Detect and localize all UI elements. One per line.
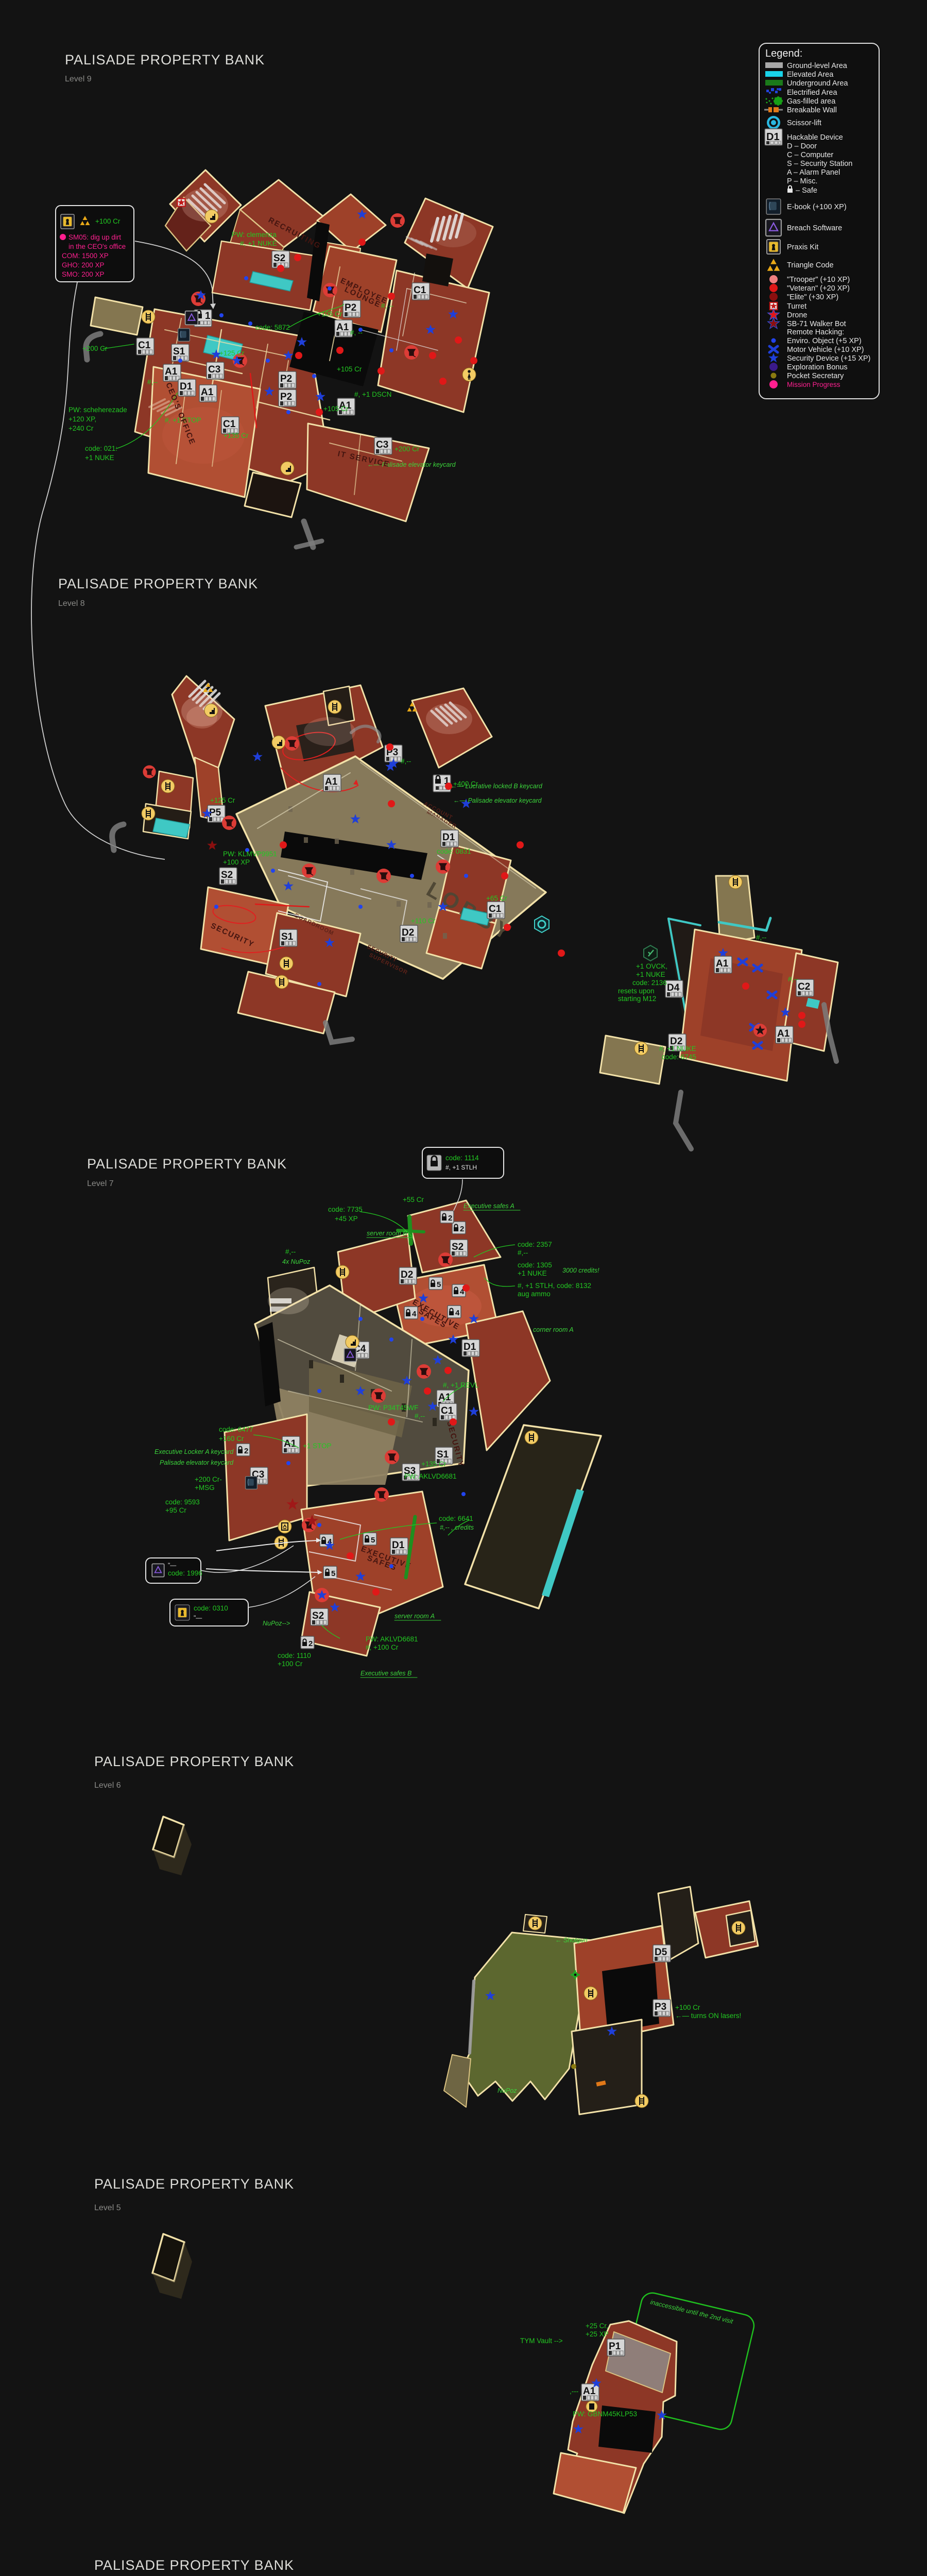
svg-text:PW: scheherezade: PW: scheherezade <box>68 406 127 414</box>
svg-text:A1: A1 <box>716 958 729 969</box>
svg-text:D1: D1 <box>442 832 455 843</box>
svg-text:PW: KLMVP9951: PW: KLMVP9951 <box>223 850 277 858</box>
svg-text:GHO: 200 XP: GHO: 200 XP <box>62 261 105 269</box>
svg-text:code: 9593: code: 9593 <box>165 1498 200 1506</box>
svg-text:PW: GBNM45KLP53: PW: GBNM45KLP53 <box>573 2410 637 2418</box>
svg-text:"Elite" (+30 XP): "Elite" (+30 XP) <box>787 293 838 301</box>
svg-text:←— Palisade elevator keycard: ←— Palisade elevator keycard <box>453 797 542 804</box>
svg-text:SM05: dig up dirt: SM05: dig up dirt <box>68 233 121 241</box>
svg-text:S – Security Station: S – Security Station <box>787 160 852 168</box>
svg-text:2: 2 <box>460 1225 464 1233</box>
svg-text:S2: S2 <box>312 1611 324 1621</box>
svg-text:#, +1 NUKE: #, +1 NUKE <box>240 240 277 247</box>
svg-text:corner room A: corner room A <box>533 1326 574 1333</box>
svg-text:D4: D4 <box>667 982 680 993</box>
svg-text:Scissor-lift: Scissor-lift <box>787 119 821 127</box>
svg-text:PALISADE PROPERTY BANK: PALISADE PROPERTY BANK <box>65 52 265 67</box>
svg-text:S2: S2 <box>452 1242 463 1252</box>
svg-text:resets upon: resets upon <box>618 987 655 995</box>
svg-text:PALISADE PROPERTY BANK: PALISADE PROPERTY BANK <box>94 1754 294 1769</box>
svg-text:A1: A1 <box>336 322 349 333</box>
svg-text:+105 Cr: +105 Cr <box>323 405 349 413</box>
svg-text:"Veteran" (+20 XP): "Veteran" (+20 XP) <box>787 284 850 293</box>
svg-text:code: 1996: code: 1996 <box>168 1569 202 1577</box>
svg-text:+1 NUKE: +1 NUKE <box>636 971 665 978</box>
svg-text:C1: C1 <box>223 419 236 430</box>
svg-text:TYM Vault -->: TYM Vault --> <box>520 2337 563 2345</box>
svg-text:Executive safes A: Executive safes A <box>463 1202 514 1210</box>
svg-text:+1 NUKE: +1 NUKE <box>85 454 114 462</box>
svg-text:NuPoz-->: NuPoz--> <box>263 1620 290 1627</box>
svg-text:Level 7: Level 7 <box>87 1179 114 1188</box>
svg-text:+105 Cr: +105 Cr <box>337 365 362 373</box>
svg-text:+55 Cr: +55 Cr <box>403 1196 424 1204</box>
svg-text:P3: P3 <box>655 2002 666 2012</box>
svg-text:"—: "— <box>194 1614 202 1621</box>
svg-text:#,--: #,-- <box>401 757 411 765</box>
svg-text:Pocket Secretary: Pocket Secretary <box>787 372 844 380</box>
svg-text:S1: S1 <box>281 931 294 942</box>
svg-text:←— turns ON lasers!: ←— turns ON lasers! <box>675 2012 741 2020</box>
svg-text:4: 4 <box>455 1309 460 1317</box>
svg-text:← Shotgun: ← Shotgun <box>555 1937 588 1944</box>
svg-text:#, +1 REVL: #, +1 REVL <box>443 1381 479 1389</box>
svg-text:code: 7735: code: 7735 <box>328 1206 363 1213</box>
svg-text:Electrified Area: Electrified Area <box>787 89 837 97</box>
svg-text:Level 8: Level 8 <box>58 599 85 608</box>
svg-text:D – Door: D – Door <box>787 142 817 150</box>
svg-text:+125 Cr: +125 Cr <box>210 796 235 804</box>
svg-text:SB-71 Walker Bot: SB-71 Walker Bot <box>787 320 846 328</box>
svg-text:#,--: #,-- <box>518 1249 528 1257</box>
svg-text:Breach Software: Breach Software <box>787 224 842 232</box>
svg-text:D5: D5 <box>655 1947 667 1958</box>
svg-text:+100 Cr: +100 Cr <box>675 2004 700 2011</box>
svg-text:Ground-level Area: Ground-level Area <box>787 62 848 70</box>
svg-text:D1: D1 <box>463 1342 476 1352</box>
svg-text:+240 Cr: +240 Cr <box>68 425 94 432</box>
svg-text:+200 Cr: +200 Cr <box>394 445 420 453</box>
svg-text:Executive Locker A keycard: Executive Locker A keycard <box>154 1448 234 1455</box>
svg-text:#,--: #,-- <box>285 1248 296 1256</box>
svg-text:COM: 1500 XP: COM: 1500 XP <box>62 252 109 260</box>
svg-text:+135 Cr: +135 Cr <box>421 1460 447 1468</box>
svg-text:Elevated Area: Elevated Area <box>787 71 834 79</box>
svg-text:code: 6641: code: 6641 <box>439 1515 473 1522</box>
svg-text:Breakable Wall: Breakable Wall <box>787 106 837 114</box>
svg-text:+1 STOP: +1 STOP <box>303 1442 332 1450</box>
svg-text:C1: C1 <box>138 340 151 351</box>
svg-text:NuPoz: NuPoz <box>497 2087 517 2094</box>
svg-text:server room B: server room B <box>367 1230 407 1237</box>
svg-text:code: 5872: code: 5872 <box>255 324 290 331</box>
svg-text:aug ammo: aug ammo <box>518 1290 551 1298</box>
svg-text:Level 6: Level 6 <box>94 1781 121 1790</box>
svg-text:C3: C3 <box>208 364 220 375</box>
svg-text:Security Device (+15 XP): Security Device (+15 XP) <box>787 354 870 363</box>
svg-text:D1: D1 <box>392 1540 405 1551</box>
svg-text:5: 5 <box>371 1536 375 1545</box>
svg-text:code: 021:: code: 021: <box>85 445 117 452</box>
svg-text:code: 1305: code: 1305 <box>518 1261 552 1269</box>
svg-text:PW: AKLVD6681: PW: AKLVD6681 <box>404 1472 457 1480</box>
svg-text:Gas-filled area: Gas-filled area <box>787 97 836 106</box>
svg-text:A – Alarm Panel: A – Alarm Panel <box>787 168 840 177</box>
svg-text:A1: A1 <box>165 366 178 377</box>
svg-text:+105 Cr: +105 Cr <box>317 310 342 318</box>
svg-text:Palisade elevator keycard: Palisade elevator keycard <box>160 1459 234 1466</box>
svg-text:+125 Cr: +125 Cr <box>219 349 245 357</box>
svg-text:+95 Cr: +95 Cr <box>165 1506 186 1514</box>
svg-text:code: 0831: code: 0831 <box>437 848 471 855</box>
svg-text:#, --: #, -- <box>350 329 363 336</box>
svg-text:+160 Cr: +160 Cr <box>219 1435 244 1443</box>
svg-text:PW: clemenza: PW: clemenza <box>232 231 277 239</box>
svg-text:E-book (+100 XP): E-book (+100 XP) <box>787 203 847 211</box>
svg-text:Level 9: Level 9 <box>65 75 92 83</box>
svg-text:A1: A1 <box>325 776 338 787</box>
svg-text:+1 NUKE: +1 NUKE <box>518 1269 547 1277</box>
svg-text:+25 XP: +25 XP <box>586 2330 609 2338</box>
svg-text:A1: A1 <box>583 2386 596 2397</box>
svg-text:4x NuPoz: 4x NuPoz <box>282 1258 311 1265</box>
svg-text:D2: D2 <box>401 1269 413 1280</box>
svg-text:Underground Area: Underground Area <box>787 79 848 88</box>
svg-text:Motor Vehicle (+10 XP): Motor Vehicle (+10 XP) <box>787 346 864 354</box>
svg-text:C1: C1 <box>441 1405 454 1416</box>
svg-text:Level 5: Level 5 <box>94 2204 121 2212</box>
svg-text:P – Misc.: P – Misc. <box>787 177 817 185</box>
svg-text:"Trooper" (+10 XP): "Trooper" (+10 XP) <box>787 276 850 284</box>
svg-text:C3: C3 <box>376 439 388 450</box>
svg-text:Triangle Code: Triangle Code <box>787 261 834 269</box>
svg-text:S1: S1 <box>173 346 185 357</box>
svg-text:D2: D2 <box>402 927 414 938</box>
svg-text:Remote Hacking:: Remote Hacking: <box>787 328 844 336</box>
svg-text:+100 XP: +100 XP <box>223 858 250 866</box>
svg-text:#,--: #,-- <box>788 975 798 983</box>
svg-text:Exploration Bonus: Exploration Bonus <box>787 363 848 371</box>
svg-text:Legend:: Legend: <box>765 48 802 59</box>
svg-text:P1: P1 <box>609 2341 621 2352</box>
svg-text:C1: C1 <box>489 904 502 914</box>
svg-text:+65 Cr: +65 Cr <box>486 894 507 902</box>
svg-text:+100 Cr: +100 Cr <box>278 1660 303 1668</box>
svg-text:PALISADE PROPERTY BANK: PALISADE PROPERTY BANK <box>58 576 258 591</box>
svg-text:PW: P34T45WF: PW: P34T45WF <box>368 1404 418 1412</box>
svg-text:C2: C2 <box>798 981 810 992</box>
svg-text:#, +1 STLH, code: 8132: #, +1 STLH, code: 8132 <box>518 1282 591 1290</box>
svg-text:code: 1114: code: 1114 <box>445 1154 479 1162</box>
svg-text:+MSG: +MSG <box>195 1484 215 1492</box>
svg-text:P2: P2 <box>280 392 292 402</box>
svg-text:C – Computer: C – Computer <box>787 151 833 159</box>
svg-text:Enviro. Object (+5 XP): Enviro. Object (+5 XP) <box>787 337 862 345</box>
svg-text:←— Lucrative locked B keycard: ←— Lucrative locked B keycard <box>451 783 543 790</box>
svg-text:code: 0310: code: 0310 <box>194 1604 228 1612</box>
svg-text:A1: A1 <box>201 387 214 398</box>
svg-text:A1: A1 <box>438 1392 451 1403</box>
svg-text:Turret: Turret <box>787 302 806 311</box>
svg-text:P2: P2 <box>345 302 356 313</box>
svg-text:#, +1 NUKE: #, +1 NUKE <box>659 1045 696 1053</box>
svg-text:D1: D1 <box>180 381 193 392</box>
svg-text:2: 2 <box>308 1639 313 1648</box>
svg-text:server room A: server room A <box>394 1613 435 1620</box>
svg-text:+100 Cr: +100 Cr <box>95 217 121 225</box>
svg-text:S2: S2 <box>221 870 233 880</box>
svg-text:+1 OVCK,: +1 OVCK, <box>636 962 667 970</box>
svg-text:PALISADE PROPERTY BANK: PALISADE PROPERTY BANK <box>94 2176 294 2192</box>
svg-text:Hackable Device: Hackable Device <box>787 133 843 142</box>
svg-text:A1: A1 <box>777 1028 790 1039</box>
svg-text:#, +1 STLH: #, +1 STLH <box>445 1164 477 1171</box>
svg-text:PALISADE PROPERTY BANK: PALISADE PROPERTY BANK <box>87 1156 287 1172</box>
svg-text:code: 6477: code: 6477 <box>219 1426 253 1433</box>
svg-text:#,--: #,-- <box>415 1412 425 1420</box>
svg-text:5: 5 <box>437 1280 441 1289</box>
svg-text:PALISADE PROPERTY BANK: PALISADE PROPERTY BANK <box>94 2557 294 2573</box>
svg-text:S2: S2 <box>273 253 285 264</box>
svg-text:PW: AKLVD6681: PW: AKLVD6681 <box>366 1635 418 1643</box>
svg-text:#,--: #,-- <box>147 378 158 386</box>
svg-text:Executive safes B: Executive safes B <box>360 1670 411 1677</box>
svg-text:4: 4 <box>412 1310 417 1318</box>
svg-text:Drone: Drone <box>787 311 808 319</box>
svg-text:+120 XP,: +120 XP, <box>68 415 96 423</box>
svg-text:S1: S1 <box>437 1449 449 1460</box>
svg-text:"—: "— <box>168 1562 176 1569</box>
svg-text:,---: ,--- <box>570 2387 578 2395</box>
svg-text:+45 XP: +45 XP <box>335 1215 358 1223</box>
svg-text:in the CEO's office: in the CEO's office <box>68 243 126 250</box>
svg-text:#,--: #,-- <box>756 934 766 941</box>
svg-text:+25 Cr,: +25 Cr, <box>586 2322 608 2330</box>
svg-text:+110 Cr: +110 Cr <box>411 917 436 925</box>
svg-text:2: 2 <box>244 1447 248 1455</box>
svg-text:+135 Cr: +135 Cr <box>224 432 249 439</box>
svg-text:starting M12: starting M12 <box>618 995 656 1003</box>
svg-text:3000 credits!: 3000 credits! <box>562 1267 599 1274</box>
svg-text:code: 1110: code: 1110 <box>278 1652 311 1659</box>
svg-text:2: 2 <box>448 1214 452 1223</box>
svg-text:SMO: 200 XP: SMO: 200 XP <box>62 270 105 278</box>
svg-text:C1: C1 <box>414 285 426 296</box>
svg-text:#, +1 DSCN: #, +1 DSCN <box>354 391 391 398</box>
svg-text:P2: P2 <box>280 374 292 384</box>
svg-text:code: 6745: code: 6745 <box>662 1053 696 1061</box>
svg-text:code: 2136: code: 2136 <box>632 979 667 987</box>
svg-text:– Safe: – Safe <box>796 187 817 195</box>
svg-text:+200 Cr-: +200 Cr- <box>195 1476 222 1483</box>
svg-text:#, +100 Cr: #, +100 Cr <box>366 1643 399 1651</box>
svg-text:Praxis Kit: Praxis Kit <box>787 243 818 251</box>
svg-text:Mission Progress: Mission Progress <box>787 381 840 388</box>
svg-text:code: 2357: code: 2357 <box>518 1241 552 1248</box>
